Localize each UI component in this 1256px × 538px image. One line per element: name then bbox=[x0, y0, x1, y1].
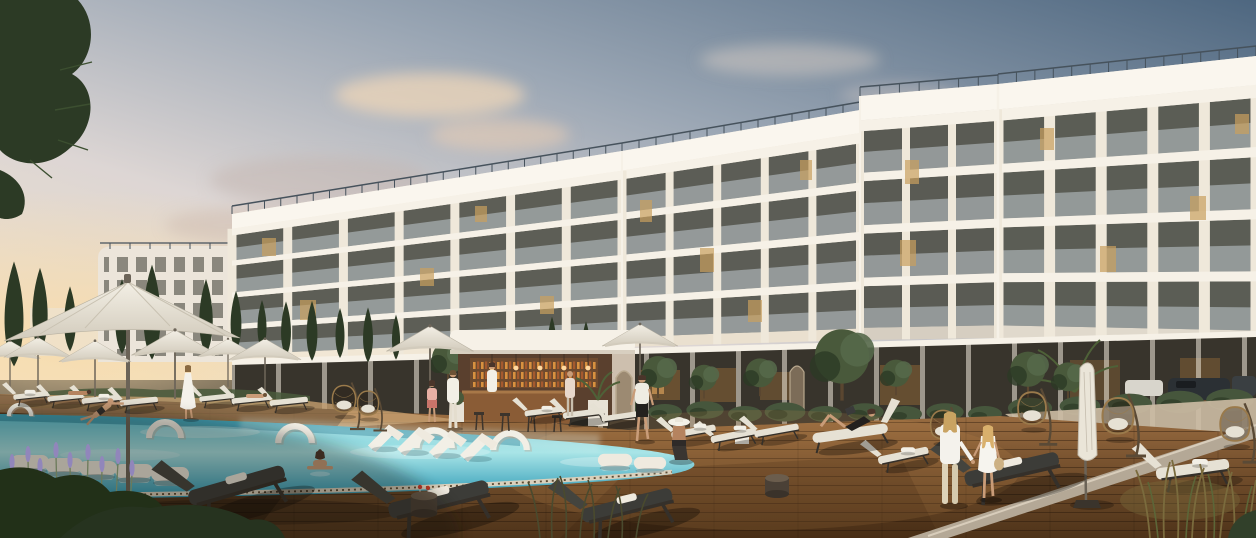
white-van bbox=[1125, 380, 1163, 396]
facade-corner bbox=[860, 75, 998, 340]
scene-svg bbox=[0, 0, 1256, 538]
rolled-towel bbox=[901, 447, 915, 455]
resort-rendering bbox=[0, 0, 1256, 538]
rolled-towel bbox=[694, 424, 707, 431]
facade-right-wing bbox=[998, 46, 1256, 345]
rolled-towel bbox=[24, 390, 35, 396]
bar-arch bbox=[616, 371, 632, 418]
drum-side-table bbox=[765, 474, 789, 498]
in-pool-lounger bbox=[598, 454, 632, 471]
in-pool-lounger bbox=[634, 457, 666, 473]
rolled-towel bbox=[734, 426, 747, 433]
rolled-towel bbox=[541, 406, 552, 412]
bar-canopy bbox=[450, 330, 635, 352]
rolled-towel bbox=[98, 394, 109, 400]
